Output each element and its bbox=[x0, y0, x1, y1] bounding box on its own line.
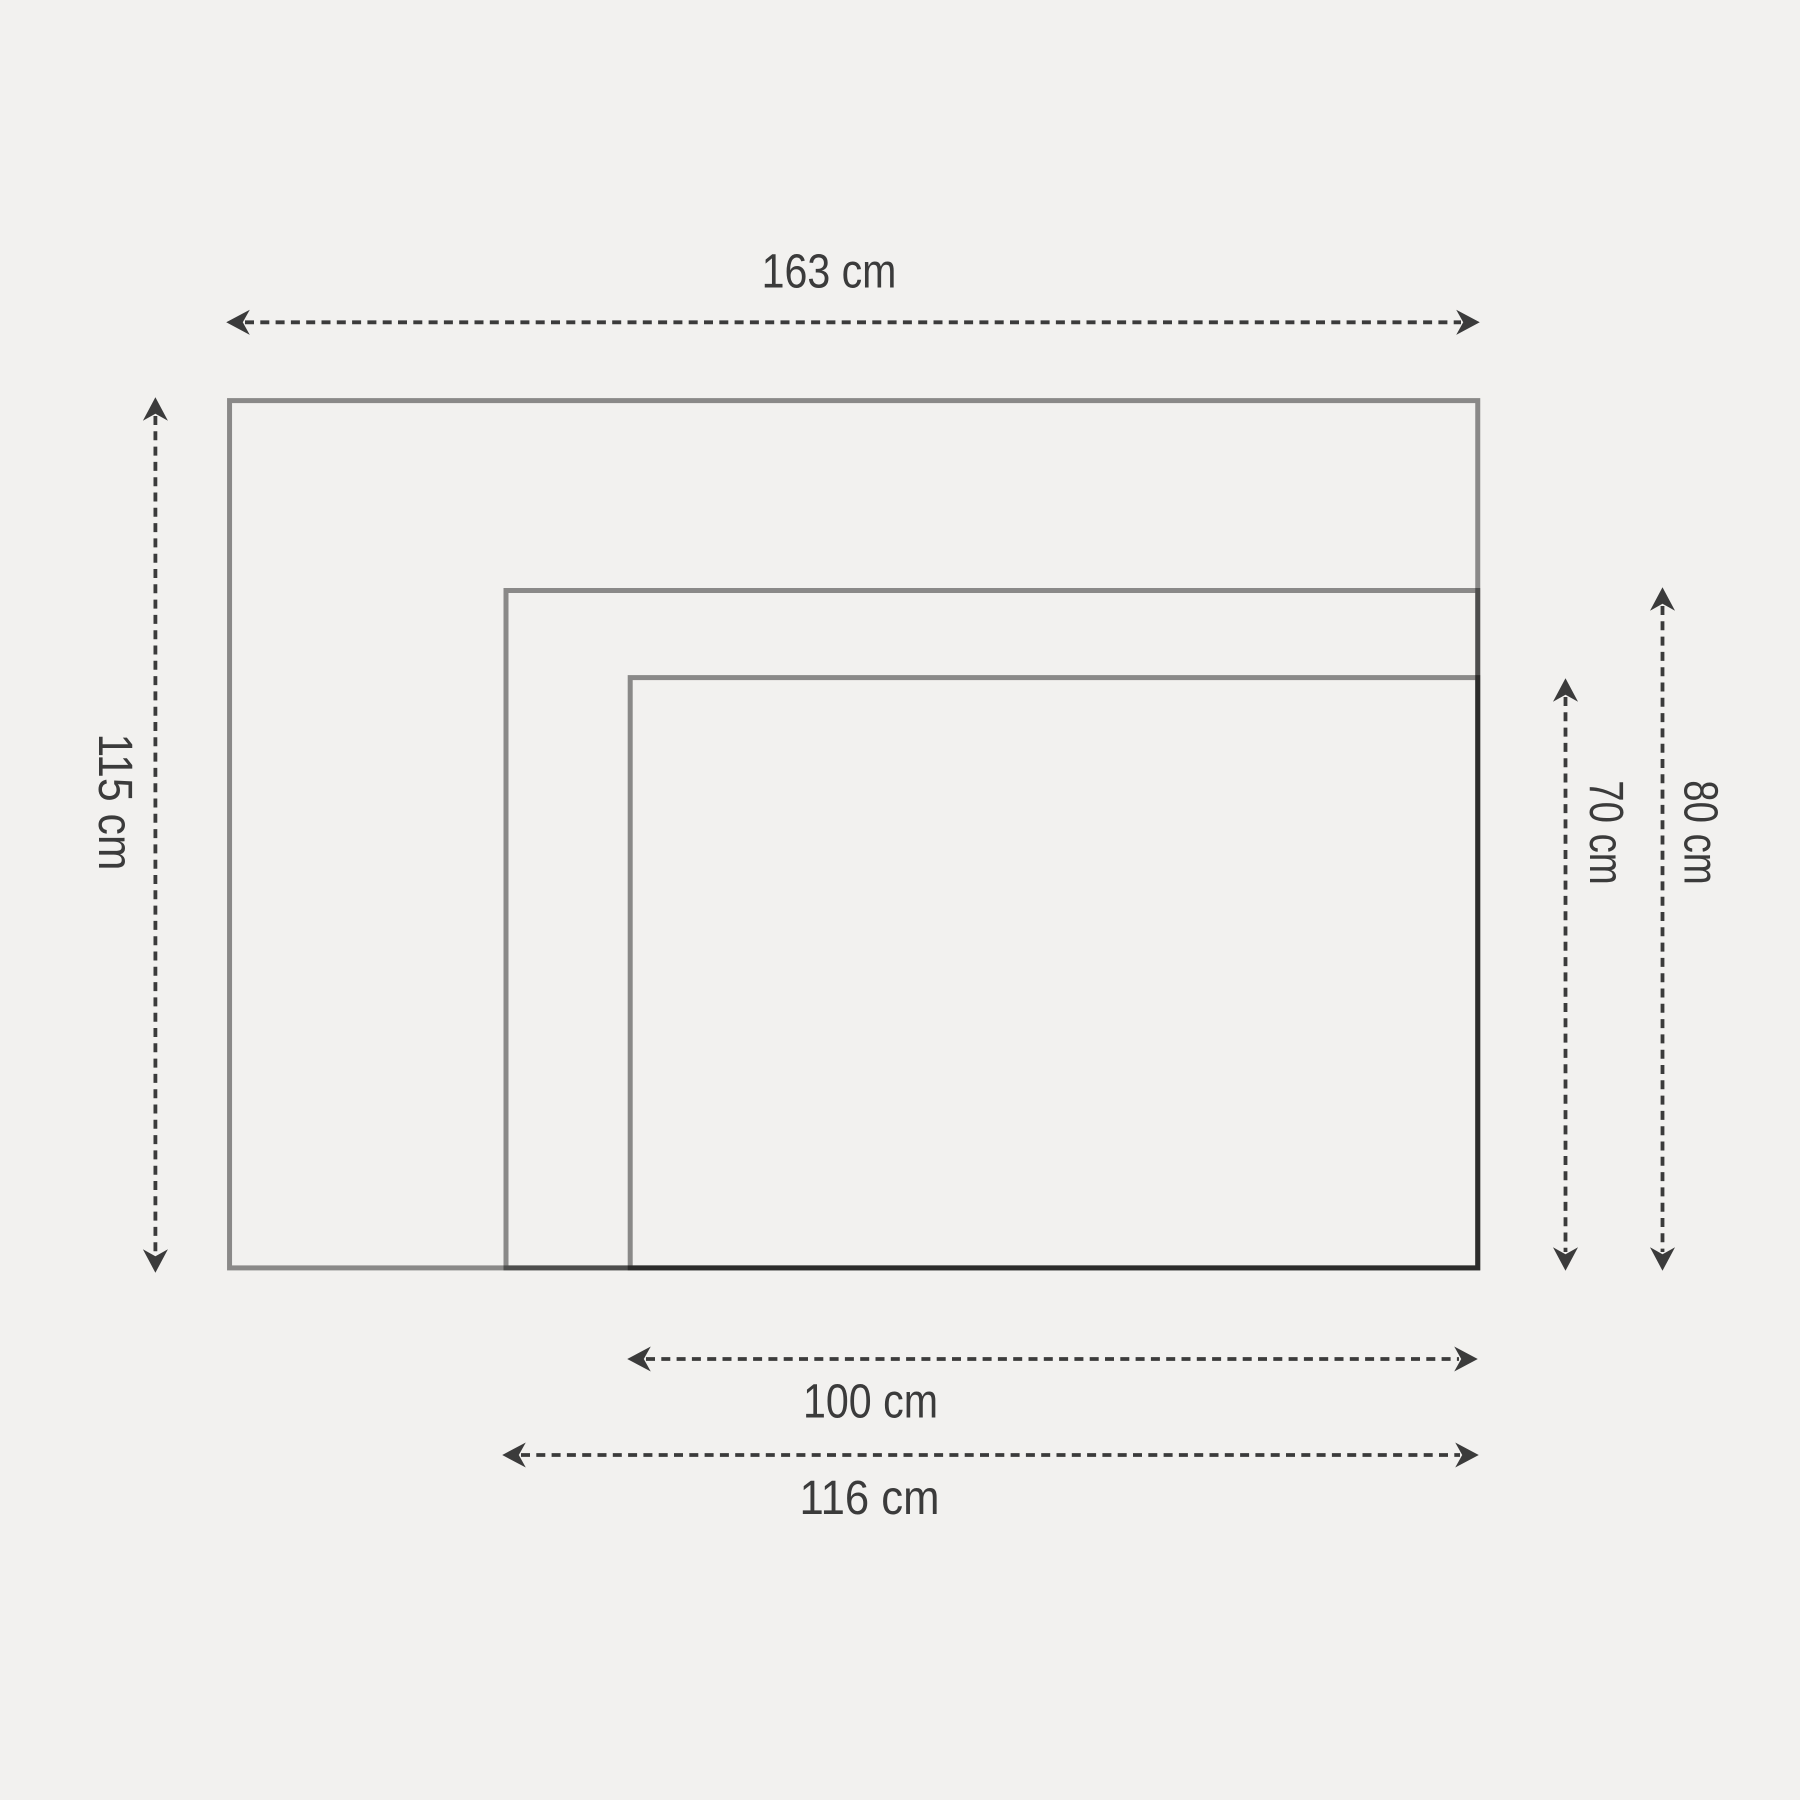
svg-text:116 cm: 116 cm bbox=[800, 1470, 940, 1524]
svg-text:115 cm: 115 cm bbox=[89, 734, 143, 871]
svg-text:163 cm: 163 cm bbox=[762, 246, 897, 299]
svg-text:80 cm: 80 cm bbox=[1673, 780, 1726, 885]
svg-text:100 cm: 100 cm bbox=[803, 1376, 938, 1429]
svg-text:70 cm: 70 cm bbox=[1579, 780, 1632, 885]
